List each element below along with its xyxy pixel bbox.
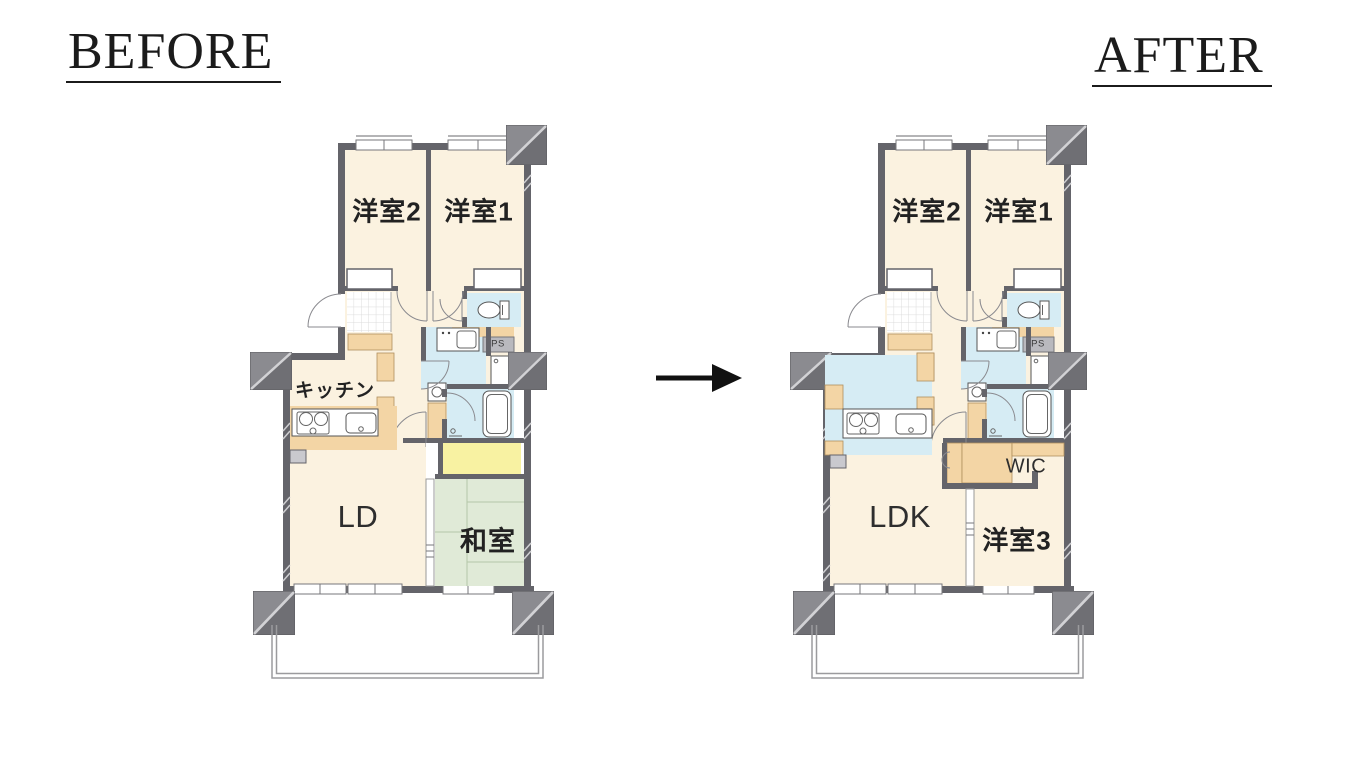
sliding-door (966, 489, 974, 586)
wic-shelf (1012, 443, 1064, 456)
wic-shelf (947, 443, 962, 485)
room-label-bedroom2: 洋室2 (352, 192, 421, 229)
room-label-bedroom3: 洋室3 (982, 521, 1051, 558)
floorplan-after: 洋室2 洋室1 LDK WIC 洋室3 PS (790, 125, 1100, 705)
room-label-japanese-room: 和室 (460, 520, 516, 559)
toilet-icon (478, 301, 509, 319)
before-title: BEFORE (66, 24, 281, 83)
sliding-door (426, 479, 434, 586)
sink-icon (346, 413, 376, 433)
closet-bedroom2 (347, 269, 392, 289)
balcony-railing (272, 625, 543, 678)
closet-yellow (443, 443, 521, 474)
room-label-living-dining: LD (338, 499, 379, 535)
after-title: AFTER (1092, 28, 1272, 87)
washbasin-icon (437, 328, 479, 351)
room-label-living-dining-kitchen: LDK (869, 499, 931, 535)
closet-bedroom1 (474, 269, 521, 289)
room-label-walk-in-closet: WIC (1006, 456, 1046, 479)
room-label-pipe-space: PS (1031, 339, 1045, 350)
room-label-bedroom1: 洋室1 (984, 192, 1053, 229)
room-label-bedroom2: 洋室2 (892, 192, 961, 229)
before-to-after-arrow-icon (650, 356, 746, 400)
room-label-kitchen: キッチン (295, 376, 375, 403)
before-after-floorplan-canvas: BEFORE AFTER (0, 0, 1350, 760)
wic-shelf (962, 443, 1012, 483)
floorplan-before: 洋室2 洋室1 キッチン LD 和室 PS (250, 125, 560, 705)
sink-icon (896, 414, 926, 434)
room-label-bedroom1: 洋室1 (444, 192, 513, 229)
room-label-pipe-space: PS (491, 339, 505, 350)
